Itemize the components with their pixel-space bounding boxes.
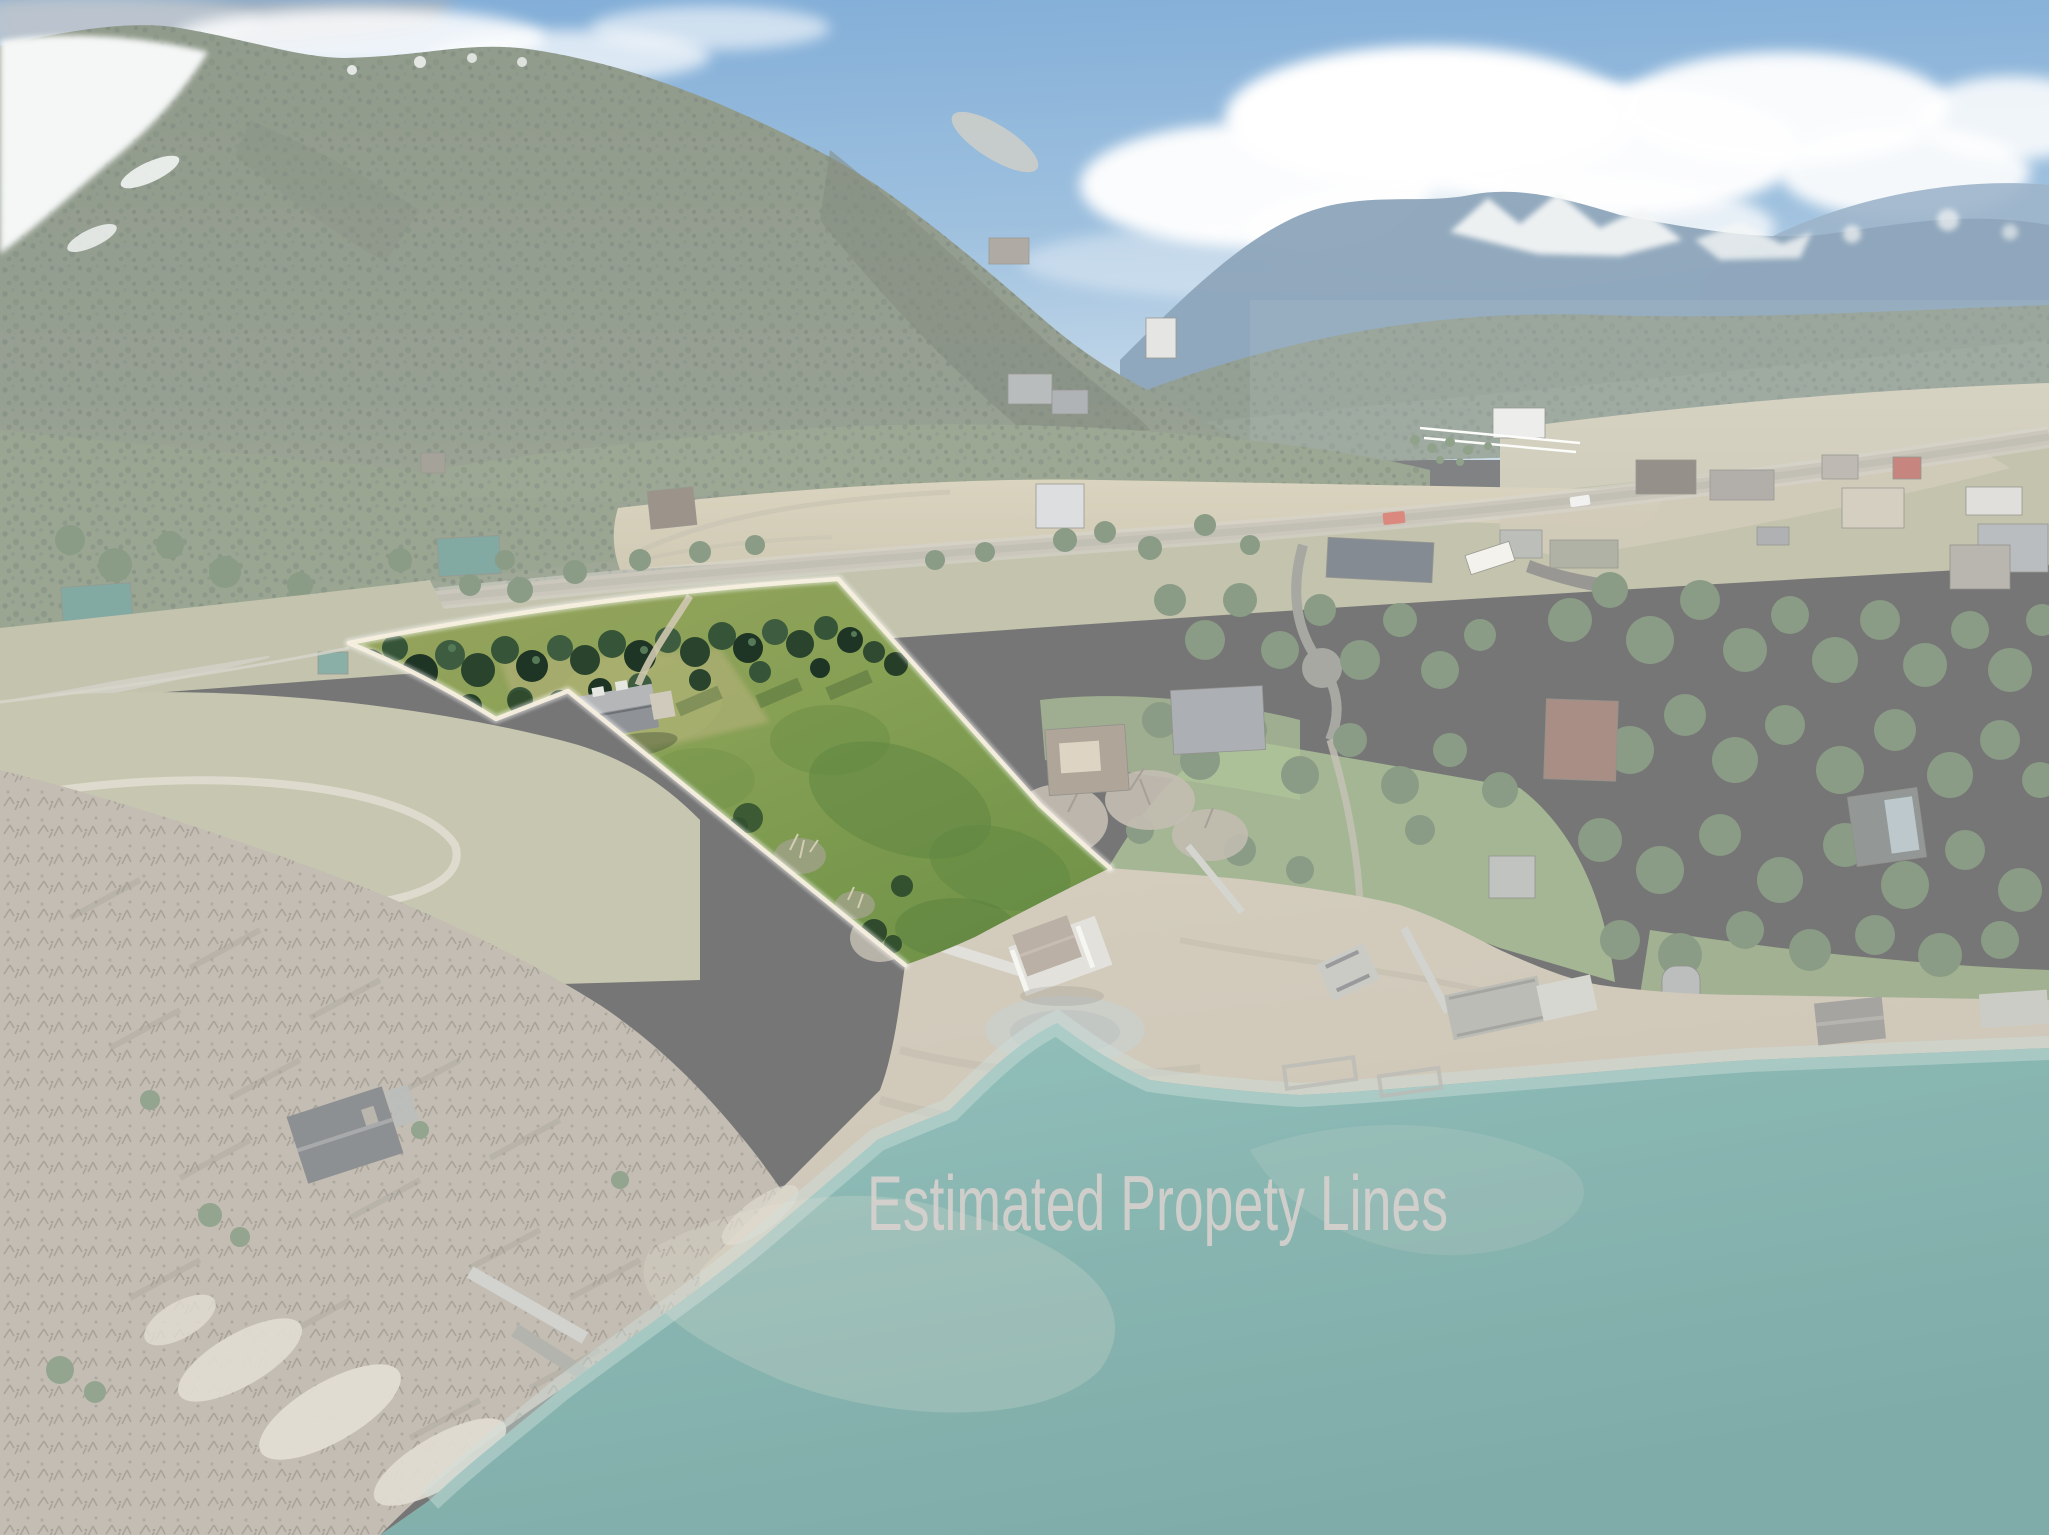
watermark-text: Estimated Propety Lines <box>867 1159 1448 1247</box>
fade-overlay <box>0 0 2049 1535</box>
aerial-photo: Estimated Propety Lines <box>0 0 2049 1535</box>
